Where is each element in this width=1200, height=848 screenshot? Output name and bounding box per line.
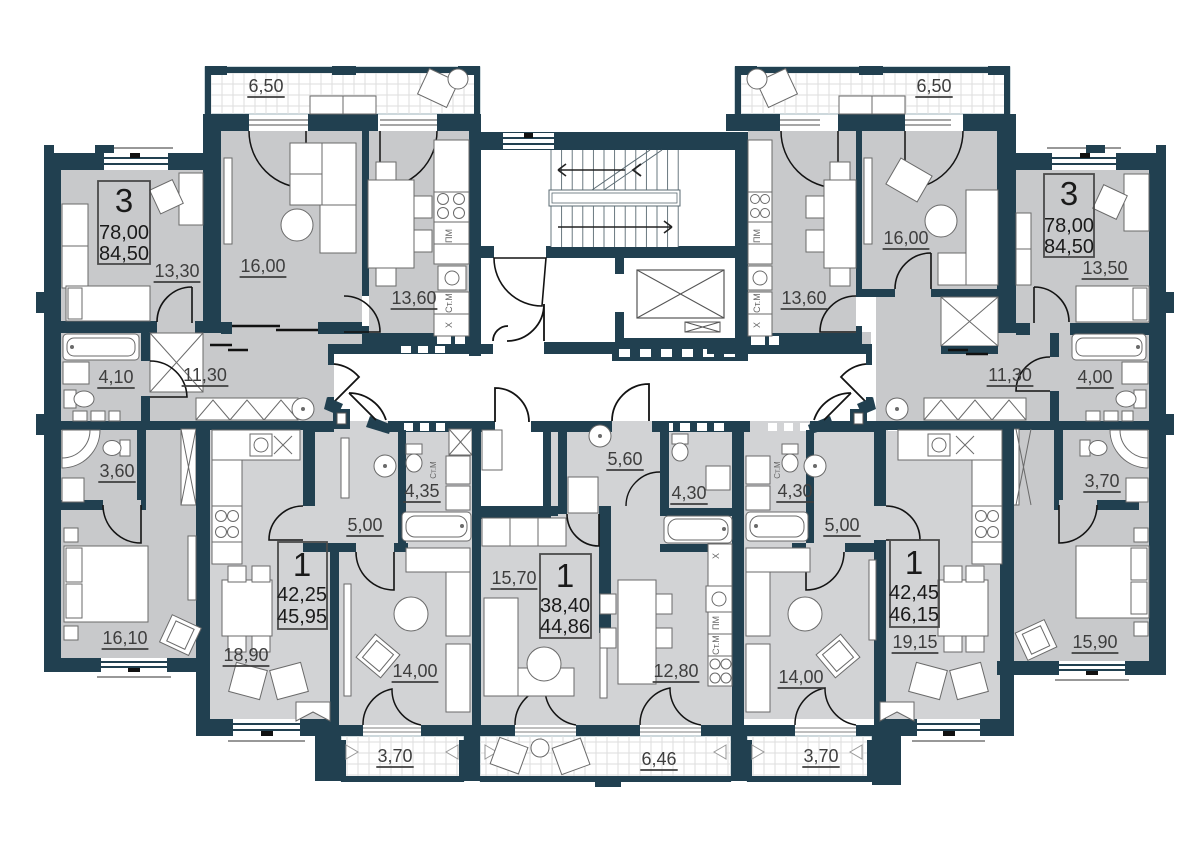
- svg-text:1: 1: [905, 544, 923, 581]
- svg-text:3,70: 3,70: [1084, 471, 1119, 491]
- svg-text:X: X: [752, 322, 762, 328]
- svg-text:16,00: 16,00: [883, 228, 928, 248]
- svg-text:14,00: 14,00: [392, 661, 437, 681]
- svg-text:ПМ: ПМ: [444, 229, 454, 243]
- svg-text:Ст.М: Ст.М: [429, 461, 438, 479]
- svg-text:14,00: 14,00: [778, 667, 823, 687]
- svg-text:84,50: 84,50: [99, 243, 149, 265]
- svg-text:12,80: 12,80: [653, 661, 698, 681]
- svg-text:X: X: [444, 322, 454, 328]
- svg-text:1: 1: [293, 546, 311, 583]
- svg-text:19,15: 19,15: [892, 632, 937, 652]
- svg-text:13,60: 13,60: [391, 288, 436, 308]
- svg-text:Ст.М: Ст.М: [773, 461, 782, 479]
- svg-text:3,60: 3,60: [99, 461, 134, 481]
- svg-text:42,25: 42,25: [277, 584, 327, 606]
- svg-text:13,50: 13,50: [1082, 258, 1127, 278]
- svg-text:4,10: 4,10: [98, 367, 133, 387]
- svg-text:13,30: 13,30: [154, 261, 199, 281]
- svg-text:13,60: 13,60: [781, 288, 826, 308]
- svg-text:15,70: 15,70: [491, 568, 536, 588]
- svg-text:6,50: 6,50: [916, 76, 951, 96]
- svg-text:ПМ: ПМ: [752, 229, 762, 243]
- svg-text:X: X: [711, 553, 721, 559]
- svg-text:5,60: 5,60: [607, 449, 642, 469]
- svg-text:18,90: 18,90: [223, 645, 268, 665]
- svg-text:78,00: 78,00: [99, 222, 149, 244]
- svg-text:3: 3: [115, 182, 133, 219]
- svg-text:46,15: 46,15: [889, 604, 939, 626]
- svg-text:5,00: 5,00: [824, 515, 859, 535]
- svg-text:11,30: 11,30: [183, 365, 227, 385]
- svg-text:3,70: 3,70: [377, 746, 412, 766]
- svg-text:4,00: 4,00: [1077, 367, 1112, 387]
- svg-text:16,10: 16,10: [102, 628, 147, 648]
- svg-text:6,50: 6,50: [248, 76, 283, 96]
- svg-text:15,90: 15,90: [1072, 632, 1117, 652]
- svg-text:4,35: 4,35: [404, 481, 439, 501]
- svg-text:1: 1: [556, 557, 574, 594]
- svg-text:84,50: 84,50: [1044, 236, 1094, 258]
- svg-text:Ст.М: Ст.М: [752, 293, 762, 313]
- svg-text:4,30: 4,30: [671, 483, 706, 503]
- svg-text:78,00: 78,00: [1044, 215, 1094, 237]
- svg-text:Ст.М: Ст.М: [711, 635, 721, 655]
- svg-text:6,46: 6,46: [641, 749, 676, 769]
- svg-text:45,95: 45,95: [277, 606, 327, 628]
- svg-text:5,00: 5,00: [347, 515, 382, 535]
- svg-text:42,45: 42,45: [889, 582, 939, 604]
- svg-text:Ст.М: Ст.М: [444, 293, 454, 313]
- svg-text:11,30: 11,30: [988, 365, 1032, 385]
- svg-text:ПМ: ПМ: [711, 616, 721, 630]
- svg-text:3,70: 3,70: [803, 746, 838, 766]
- svg-text:3: 3: [1060, 175, 1078, 212]
- svg-text:4,30: 4,30: [777, 481, 812, 501]
- svg-text:38,40: 38,40: [540, 595, 590, 617]
- svg-text:44,86: 44,86: [540, 616, 590, 638]
- svg-text:16,00: 16,00: [240, 256, 285, 276]
